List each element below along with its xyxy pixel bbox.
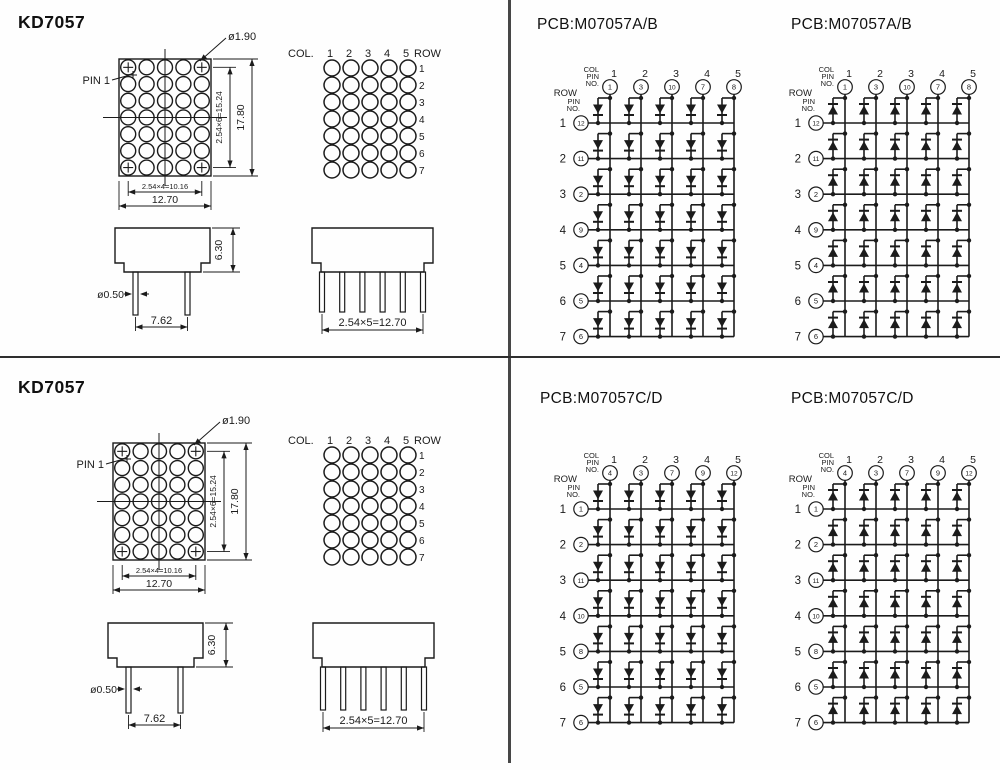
arrowhead: [230, 228, 235, 235]
junction-dot: [955, 720, 959, 724]
junction-dot: [936, 517, 940, 521]
diode-triangle: [593, 704, 603, 713]
junction-dot: [720, 192, 724, 196]
led-dot: [176, 143, 191, 158]
row-pin-number: 4: [814, 261, 818, 270]
junction-dot: [639, 203, 643, 207]
matrix-dot: [381, 60, 397, 76]
matrix-dot: [343, 128, 359, 144]
matrix-dot: [324, 60, 340, 76]
diode-triangle: [655, 247, 665, 256]
matrix-dot: [343, 532, 359, 548]
junction-dot: [924, 156, 928, 160]
arrowhead: [129, 722, 136, 727]
col-pin-number: 8: [732, 83, 736, 92]
col-number: 4: [939, 454, 945, 466]
junction-dot: [639, 238, 643, 242]
junction-dot: [955, 334, 959, 338]
matrix-dot: [400, 162, 416, 178]
datasheet-page: KD7057 KD7057 PCB:M07057A/B PCB:M07057A/…: [0, 0, 1000, 770]
diode-triangle: [890, 319, 900, 328]
junction-dot: [720, 263, 724, 267]
matrix-dot: [381, 498, 397, 514]
row-number: 7: [795, 718, 801, 730]
diode-triangle: [717, 526, 727, 535]
diode-triangle: [890, 177, 900, 186]
junction-dot: [955, 507, 959, 511]
diode-triangle: [828, 212, 838, 221]
arrowhead: [195, 189, 202, 194]
diode-triangle: [859, 319, 869, 328]
junction-dot: [936, 309, 940, 313]
junction-dot: [689, 649, 693, 653]
schematic-1: COLPINNO.ROWPINNO.1123310475811221132495…: [789, 65, 977, 344]
dim-pin-pitch: 2.54×5=12.70: [340, 715, 408, 727]
col-pin-number: 7: [701, 83, 705, 92]
diode-triangle: [921, 319, 931, 328]
junction-dot: [627, 299, 631, 303]
junction-dot: [955, 542, 959, 546]
diode-triangle: [655, 318, 665, 327]
diode-triangle: [717, 105, 727, 114]
matrix-dot: [381, 94, 397, 110]
junction-dot: [658, 156, 662, 160]
matrix-dot: [381, 128, 397, 144]
diode-triangle: [686, 140, 696, 149]
row-pin-number: 11: [578, 578, 585, 585]
side-pin: [178, 667, 183, 713]
junction-dot: [862, 228, 866, 232]
pin1-leader: [112, 75, 130, 80]
junction-dot: [893, 542, 897, 546]
junction-dot: [924, 507, 928, 511]
arrowhead: [198, 587, 205, 592]
col-pin-number: 3: [874, 83, 878, 92]
arrowhead: [189, 573, 196, 578]
col-pin-number: 7: [905, 469, 909, 478]
diode-triangle: [686, 176, 696, 185]
no-header-label: NO.: [586, 79, 599, 88]
diode-triangle: [624, 318, 634, 327]
junction-dot: [596, 685, 600, 689]
junction-dot: [658, 614, 662, 618]
diode-triangle: [655, 105, 665, 114]
diode-triangle: [686, 491, 696, 500]
junction-dot: [608, 553, 612, 557]
matrix-dot: [381, 532, 397, 548]
diode-triangle: [890, 492, 900, 501]
dim-h-outer: 12.70: [152, 194, 178, 206]
junction-dot: [955, 578, 959, 582]
matrix-dot: [343, 162, 359, 178]
junction-dot: [893, 507, 897, 511]
junction-dot: [843, 589, 847, 593]
row-number: 3: [560, 189, 566, 201]
arrowhead: [227, 161, 232, 168]
junction-dot: [905, 238, 909, 242]
matrix-dot: [381, 481, 397, 497]
matrix-dot: [343, 77, 359, 93]
junction-dot: [967, 203, 971, 207]
col-number: 2: [642, 68, 648, 80]
junction-dot: [936, 96, 940, 100]
junction-dot: [596, 578, 600, 582]
matrix-dot: [381, 111, 397, 127]
diode-triangle: [921, 527, 931, 536]
junction-dot: [936, 589, 940, 593]
diode-triangle: [624, 669, 634, 678]
junction-dot: [720, 334, 724, 338]
matrix-dot: [362, 60, 378, 76]
matrix-col-label: COL.: [288, 435, 314, 447]
row-pin-number: 10: [577, 613, 585, 620]
diode-triangle: [717, 704, 727, 713]
diode-triangle: [717, 176, 727, 185]
junction-dot: [596, 156, 600, 160]
diode-triangle: [593, 140, 603, 149]
junction-dot: [720, 156, 724, 160]
matrix-row-number: 6: [419, 536, 425, 547]
junction-dot: [831, 192, 835, 196]
junction-dot: [967, 167, 971, 171]
junction-dot: [955, 192, 959, 196]
junction-dot: [924, 649, 928, 653]
junction-dot: [732, 203, 736, 207]
junction-dot: [924, 263, 928, 267]
matrix-dot: [362, 128, 378, 144]
diode-triangle: [952, 598, 962, 607]
junction-dot: [627, 685, 631, 689]
diode-triangle: [686, 526, 696, 535]
diode-triangle: [921, 492, 931, 501]
side-pin: [126, 667, 131, 713]
row-pin-number: 12: [812, 121, 820, 128]
col-pin-number: 7: [670, 469, 674, 478]
junction-dot: [831, 156, 835, 160]
col-number: 3: [908, 68, 914, 80]
col-pin-number: 3: [639, 469, 643, 478]
col-number: 4: [704, 68, 710, 80]
row-pin-number: 1: [579, 505, 583, 514]
matrix-dot: [324, 515, 340, 531]
diode-triangle: [828, 670, 838, 679]
bottomview-pin: [320, 272, 325, 312]
bottomview-body: [313, 623, 434, 667]
matrix-dot: [400, 447, 416, 463]
arrowhead: [223, 623, 228, 630]
junction-dot: [905, 309, 909, 313]
junction-dot: [608, 482, 612, 486]
junction-dot: [670, 167, 674, 171]
arrowhead: [243, 553, 248, 560]
diode-triangle: [859, 212, 869, 221]
bottomview-pin: [361, 667, 366, 710]
row-number: 2: [560, 154, 566, 166]
row-pin-number: 2: [814, 190, 818, 199]
row-pin-number: 6: [814, 332, 818, 341]
junction-dot: [874, 517, 878, 521]
led-dot: [176, 160, 191, 175]
dim-pin-pitch: 2.54×5=12.70: [339, 317, 407, 329]
junction-dot: [701, 660, 705, 664]
junction-dot: [670, 274, 674, 278]
diode-triangle: [890, 212, 900, 221]
junction-dot: [893, 228, 897, 232]
col-pin-number: 4: [608, 469, 612, 478]
led-dot: [121, 143, 136, 158]
junction-dot: [874, 203, 878, 207]
junction-dot: [843, 131, 847, 135]
bottomview-pin: [380, 272, 385, 312]
diode-triangle: [717, 140, 727, 149]
bottomview-pin: [422, 667, 427, 710]
row-pin-number: 11: [813, 156, 820, 163]
diode-triangle: [828, 106, 838, 115]
col-pin-number: 12: [730, 471, 738, 478]
col-number: 5: [735, 68, 741, 80]
dim-pin-diameter: ø0.50: [90, 684, 117, 696]
col-pin-number: 10: [903, 85, 911, 92]
diode-triangle: [717, 318, 727, 327]
arrowhead: [243, 443, 248, 450]
junction-dot: [701, 274, 705, 278]
col-pin-number: 8: [967, 83, 971, 92]
junction-dot: [893, 299, 897, 303]
matrix-row-number: 7: [419, 553, 425, 564]
junction-dot: [831, 649, 835, 653]
junction-dot: [936, 203, 940, 207]
diode-triangle: [890, 527, 900, 536]
bottomview-pin: [340, 272, 345, 312]
junction-dot: [955, 299, 959, 303]
junction-dot: [608, 695, 612, 699]
circuit-schematics: COLPINNO.ROWPINNO.1123310475811221132495…: [510, 0, 1000, 770]
junction-dot: [893, 334, 897, 338]
diode-triangle: [828, 634, 838, 643]
junction-dot: [627, 228, 631, 232]
matrix-row-number: 3: [419, 485, 425, 496]
led-diameter-label: ø1.90: [228, 31, 256, 43]
junction-dot: [843, 238, 847, 242]
col-number: 1: [611, 454, 617, 466]
matrix-dot: [400, 498, 416, 514]
junction-dot: [831, 720, 835, 724]
matrix-dot: [400, 60, 416, 76]
junction-dot: [596, 334, 600, 338]
junction-dot: [732, 660, 736, 664]
junction-dot: [843, 624, 847, 628]
arrowhead: [230, 265, 235, 272]
junction-dot: [701, 238, 705, 242]
junction-dot: [689, 507, 693, 511]
matrix-dot: [400, 532, 416, 548]
schematic-2: COLPINNO.ROWPINNO.1423374951211223114105…: [554, 451, 742, 730]
junction-dot: [967, 624, 971, 628]
junction-dot: [596, 542, 600, 546]
diode-triangle: [593, 597, 603, 606]
junction-dot: [905, 167, 909, 171]
junction-dot: [905, 203, 909, 207]
led-dot: [139, 93, 154, 108]
matrix-dot: [343, 111, 359, 127]
diode-triangle: [717, 669, 727, 678]
no-header-label: NO.: [802, 490, 815, 499]
diode-triangle: [859, 705, 869, 714]
matrix-dot: [362, 447, 378, 463]
junction-dot: [862, 720, 866, 724]
matrix-dot: [400, 128, 416, 144]
junction-dot: [831, 228, 835, 232]
junction-dot: [862, 121, 866, 125]
junction-dot: [893, 263, 897, 267]
matrix-col-number: 3: [365, 435, 371, 447]
matrix-col-number: 4: [384, 48, 390, 60]
matrix-row-label: ROW: [414, 48, 442, 60]
side-pin: [133, 272, 138, 315]
junction-dot: [701, 553, 705, 557]
matrix-dot: [381, 162, 397, 178]
dim-side-height: 6.30: [206, 635, 218, 656]
diode-triangle: [952, 319, 962, 328]
junction-dot: [936, 131, 940, 135]
junction-dot: [701, 589, 705, 593]
row-number: 2: [560, 540, 566, 552]
diode-triangle: [828, 598, 838, 607]
diode-triangle: [952, 212, 962, 221]
led-dot: [188, 527, 203, 542]
junction-dot: [732, 695, 736, 699]
matrix-col-number: 1: [327, 48, 333, 60]
diode-triangle: [859, 177, 869, 186]
junction-dot: [862, 263, 866, 267]
diode-triangle: [593, 247, 603, 256]
arrowhead: [221, 545, 226, 552]
led-dot: [139, 143, 154, 158]
junction-dot: [843, 517, 847, 521]
diode-triangle: [890, 284, 900, 293]
junction-dot: [720, 649, 724, 653]
junction-dot: [720, 685, 724, 689]
junction-dot: [843, 167, 847, 171]
arrowhead: [122, 573, 129, 578]
matrix-dot: [362, 532, 378, 548]
matrix-dot: [324, 162, 340, 178]
junction-dot: [955, 685, 959, 689]
junction-dot: [720, 720, 724, 724]
arrowhead: [323, 725, 330, 730]
dim-pin-spacing: 7.62: [151, 315, 172, 327]
junction-dot: [843, 96, 847, 100]
junction-dot: [843, 695, 847, 699]
matrix-dot: [400, 94, 416, 110]
diode-triangle: [890, 248, 900, 257]
junction-dot: [701, 695, 705, 699]
arrowhead: [118, 686, 125, 691]
row-number: 4: [560, 611, 567, 623]
col-number: 5: [970, 454, 976, 466]
junction-dot: [627, 121, 631, 125]
col-number: 1: [611, 68, 617, 80]
schematic-0: COLPINNO.ROWPINNO.1123310475811221132495…: [554, 65, 742, 344]
diode-triangle: [890, 670, 900, 679]
junction-dot: [689, 720, 693, 724]
junction-dot: [874, 309, 878, 313]
junction-dot: [955, 121, 959, 125]
side-body: [115, 228, 210, 272]
junction-dot: [639, 553, 643, 557]
diode-triangle: [890, 106, 900, 115]
col-pin-number: 9: [936, 469, 940, 478]
junction-dot: [596, 720, 600, 724]
junction-dot: [893, 720, 897, 724]
matrix-dot: [324, 94, 340, 110]
junction-dot: [831, 507, 835, 511]
junction-dot: [627, 507, 631, 511]
junction-dot: [596, 121, 600, 125]
dim-side-height: 6.30: [213, 240, 225, 261]
junction-dot: [862, 334, 866, 338]
col-number: 2: [877, 68, 883, 80]
junction-dot: [924, 614, 928, 618]
diode-triangle: [593, 211, 603, 220]
col-pin-number: 1: [843, 83, 847, 92]
matrix-row-number: 1: [419, 451, 425, 462]
col-pin-number: 1: [608, 83, 612, 92]
matrix-row-number: 5: [419, 132, 425, 143]
no-header-label: NO.: [567, 104, 580, 113]
row-number: 5: [795, 260, 801, 272]
matrix-dot: [324, 447, 340, 463]
row-number: 4: [795, 611, 802, 623]
matrix-dot: [362, 94, 378, 110]
diode-triangle: [655, 526, 665, 535]
dim-v-outer: 17.80: [229, 488, 241, 514]
diode-triangle: [624, 633, 634, 642]
diode-triangle: [717, 247, 727, 256]
diode-triangle: [859, 284, 869, 293]
diode-triangle: [593, 526, 603, 535]
junction-dot: [639, 167, 643, 171]
col-pin-number: 9: [701, 469, 705, 478]
diode-triangle: [686, 283, 696, 292]
diode-triangle: [921, 563, 931, 572]
led-dot: [139, 77, 154, 92]
diode-triangle: [624, 491, 634, 500]
diode-triangle: [717, 491, 727, 500]
matrix-row-number: 4: [419, 115, 425, 126]
junction-dot: [862, 614, 866, 618]
arrowhead: [174, 722, 181, 727]
junction-dot: [936, 274, 940, 278]
matrix-col-number: 2: [346, 435, 352, 447]
led-diameter-label: ø1.90: [222, 415, 250, 427]
junction-dot: [732, 131, 736, 135]
junction-dot: [720, 228, 724, 232]
row-pin-number: 11: [813, 578, 820, 585]
matrix-dot: [362, 549, 378, 565]
col-number: 3: [673, 454, 679, 466]
row-pin-number: 8: [814, 647, 818, 656]
matrix-col-number: 5: [403, 435, 409, 447]
diode-triangle: [921, 248, 931, 257]
diode-triangle: [655, 597, 665, 606]
diode-triangle: [828, 563, 838, 572]
junction-dot: [670, 309, 674, 313]
junction-dot: [670, 517, 674, 521]
junction-dot: [831, 121, 835, 125]
no-header-label: NO.: [586, 465, 599, 474]
row-number: 4: [560, 225, 567, 237]
